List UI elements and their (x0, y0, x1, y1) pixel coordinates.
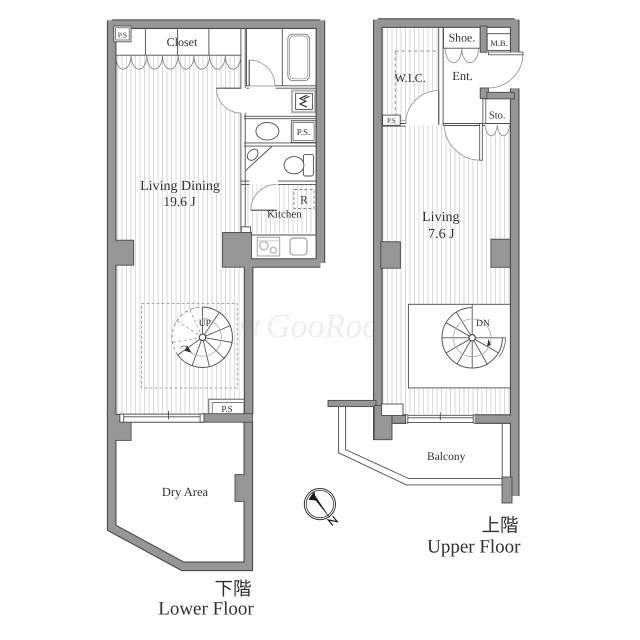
svg-text:UP: UP (199, 319, 211, 329)
svg-text:Balcony: Balcony (427, 451, 466, 463)
svg-text:Living Dining: Living Dining (140, 179, 220, 194)
svg-text:Dry Area: Dry Area (162, 485, 209, 499)
svg-text:7.6 J: 7.6 J (428, 227, 455, 242)
svg-text:Living: Living (422, 210, 459, 225)
svg-text:W.I.C.: W.I.C. (395, 71, 426, 85)
svg-text:Shoe.: Shoe. (449, 31, 476, 45)
svg-text:Lower Floor: Lower Floor (158, 599, 254, 620)
svg-text:P.S: P.S (221, 404, 232, 414)
svg-text:上階: 上階 (481, 516, 518, 537)
svg-text:19.6 J: 19.6 J (163, 194, 195, 209)
svg-text:P.S.: P.S. (297, 127, 311, 137)
svg-text:Upper Floor: Upper Floor (427, 537, 521, 558)
svg-text:下階: 下階 (214, 579, 251, 600)
svg-text:M.B.: M.B. (490, 38, 507, 48)
svg-text:R: R (300, 195, 308, 207)
svg-text:GooRoo: GooRoo (266, 308, 379, 345)
svg-text:P.S: P.S (118, 31, 127, 40)
svg-text:Sto.: Sto. (489, 111, 506, 122)
svg-text:Closet: Closet (167, 35, 198, 49)
svg-text:Kitchen: Kitchen (267, 209, 302, 221)
svg-text:Ent.: Ent. (452, 69, 472, 83)
svg-text:DN: DN (476, 319, 490, 329)
svg-text:P.S: P.S (387, 117, 396, 125)
